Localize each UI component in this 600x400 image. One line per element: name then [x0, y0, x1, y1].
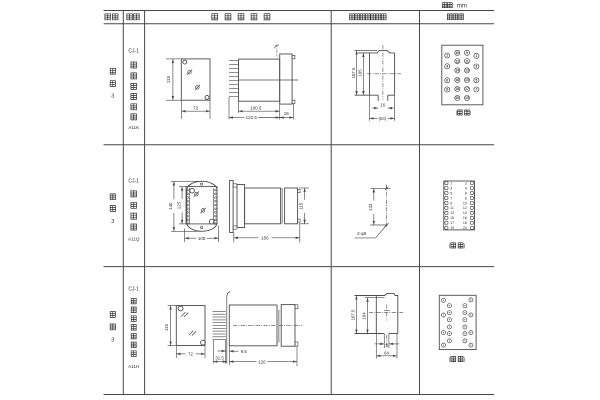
svg-text:CJ-1: CJ-1 [128, 178, 139, 184]
svg-text:mm: mm [457, 3, 467, 9]
svg-text:31.5: 31.5 [215, 355, 224, 360]
svg-text:125: 125 [176, 201, 181, 209]
svg-text:105: 105 [358, 69, 363, 77]
svg-text:12: 12 [455, 59, 459, 63]
svg-text:115: 115 [164, 324, 169, 332]
svg-text:A11Q: A11Q [128, 236, 140, 241]
svg-text:2: 2 [446, 54, 448, 58]
svg-text:20: 20 [455, 96, 459, 100]
svg-text:17: 17 [465, 87, 469, 91]
svg-text:19: 19 [450, 226, 454, 230]
svg-text:4: 4 [465, 186, 467, 190]
svg-text:122.5: 122.5 [246, 115, 258, 120]
svg-text:5: 5 [475, 79, 477, 83]
svg-text:18: 18 [463, 221, 467, 225]
svg-text:15: 15 [450, 216, 454, 220]
svg-text:133: 133 [368, 203, 373, 211]
svg-text:18: 18 [455, 87, 459, 91]
svg-text:7: 7 [475, 88, 477, 92]
svg-text:20: 20 [463, 226, 467, 230]
svg-text:16: 16 [455, 78, 459, 82]
svg-text:115: 115 [299, 202, 304, 210]
svg-text:5: 5 [450, 191, 452, 195]
svg-text:1: 1 [475, 54, 477, 58]
svg-text:3: 3 [111, 337, 114, 343]
svg-text:19: 19 [465, 96, 469, 100]
svg-text:13: 13 [450, 211, 454, 215]
svg-text:15: 15 [465, 78, 469, 82]
svg-text:105: 105 [198, 236, 206, 241]
svg-text:11: 11 [465, 59, 469, 63]
svg-text:9: 9 [466, 51, 468, 55]
svg-text:126: 126 [258, 359, 266, 364]
svg-text:17: 17 [450, 221, 454, 225]
svg-text:156: 156 [261, 236, 269, 241]
svg-text:1: 1 [450, 181, 452, 185]
svg-text:14: 14 [455, 69, 459, 73]
svg-text:13: 13 [465, 69, 469, 73]
svg-text:15: 15 [284, 111, 290, 116]
svg-text:7: 7 [450, 196, 452, 200]
svg-text:A11K: A11K [128, 125, 140, 130]
svg-text:8: 8 [446, 88, 448, 92]
svg-text:4: 4 [446, 65, 448, 69]
svg-text:9.5: 9.5 [241, 349, 248, 354]
svg-text:140: 140 [168, 202, 173, 210]
svg-text:2: 2 [465, 181, 467, 185]
svg-text:3: 3 [111, 93, 114, 99]
svg-text:CJ-1: CJ-1 [128, 286, 139, 292]
svg-text:64: 64 [384, 350, 389, 355]
svg-text:72: 72 [193, 105, 199, 110]
svg-text:16: 16 [463, 216, 467, 220]
svg-text:104: 104 [362, 312, 367, 320]
svg-text:14: 14 [463, 211, 467, 215]
svg-text:100.5: 100.5 [250, 105, 262, 110]
svg-text:11: 11 [450, 206, 454, 210]
svg-text:CJ-1: CJ-1 [128, 49, 139, 55]
svg-text:115: 115 [166, 75, 171, 83]
svg-text:A11H: A11H [128, 364, 139, 369]
svg-text:3: 3 [111, 219, 114, 225]
svg-text:12: 12 [463, 206, 467, 210]
svg-text:10: 10 [455, 51, 459, 55]
svg-text:8: 8 [465, 196, 467, 200]
svg-text:9: 9 [450, 201, 452, 205]
svg-text:16: 16 [380, 102, 385, 107]
svg-text:6: 6 [446, 79, 448, 83]
svg-text:3: 3 [450, 186, 452, 190]
svg-text:2-φ5: 2-φ5 [357, 231, 367, 236]
svg-text:(64): (64) [379, 116, 387, 121]
svg-text:3: 3 [475, 65, 477, 69]
svg-text:10: 10 [463, 201, 467, 205]
svg-text:6: 6 [465, 191, 467, 195]
svg-text:107.5: 107.5 [351, 67, 356, 78]
svg-text:72: 72 [188, 352, 193, 357]
svg-text:107.5: 107.5 [351, 309, 356, 320]
svg-text:16: 16 [385, 343, 389, 347]
